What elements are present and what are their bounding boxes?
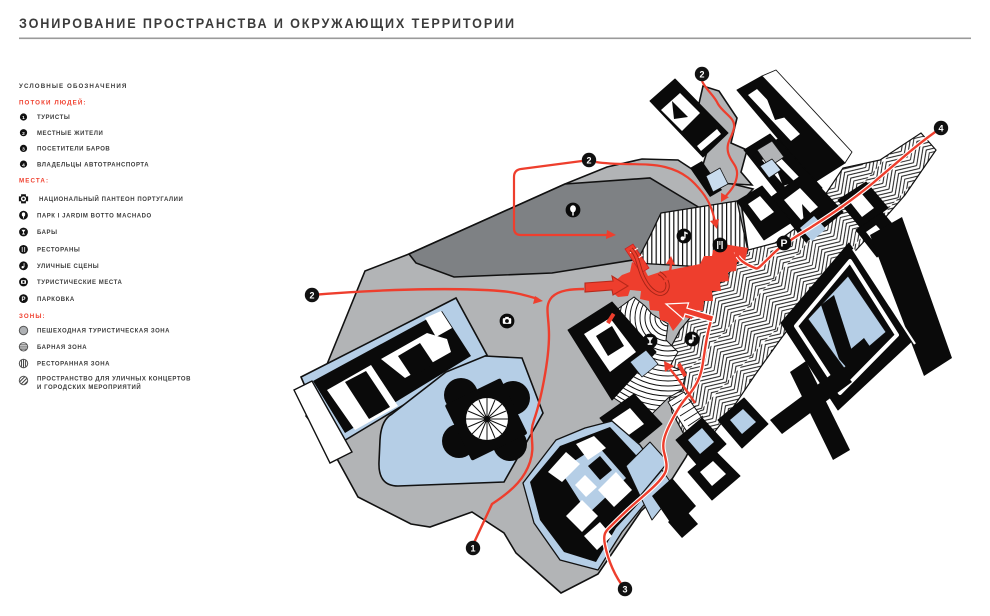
- svg-text:И ГОРОДСКИХ МЕРОПРИЯТИЙ: И ГОРОДСКИХ МЕРОПРИЯТИЙ: [37, 383, 141, 391]
- svg-text:ПОСЕТИТЕЛИ БАРОВ: ПОСЕТИТЕЛИ БАРОВ: [37, 147, 110, 153]
- svg-text:4: 4: [938, 123, 943, 133]
- svg-text:3: 3: [22, 147, 25, 153]
- svg-text:ПАРКОВКА: ПАРКОВКА: [37, 297, 75, 303]
- svg-text:ПАРК I JARDIM BOTTO MACHADO: ПАРК I JARDIM BOTTO MACHADO: [37, 213, 152, 219]
- svg-text:УСЛОВНЫЕ ОБОЗНАЧЕНИЯ: УСЛОВНЫЕ ОБОЗНАЧЕНИЯ: [19, 83, 127, 90]
- svg-text:P: P: [780, 238, 787, 250]
- svg-text:БАРЫ: БАРЫ: [37, 230, 58, 236]
- svg-text:ПРОСТРАНСТВО ДЛЯ УЛИЧНЫХ КОНЦЕ: ПРОСТРАНСТВО ДЛЯ УЛИЧНЫХ КОНЦЕРТОВ: [37, 377, 191, 383]
- svg-text:ПЕШЕХОДНАЯ ТУРИСТИЧЕСКАЯ ЗОНА: ПЕШЕХОДНАЯ ТУРИСТИЧЕСКАЯ ЗОНА: [37, 329, 170, 335]
- svg-text:МЕСТНЫЕ ЖИТЕЛИ: МЕСТНЫЕ ЖИТЕЛИ: [37, 131, 103, 137]
- svg-text:2: 2: [22, 131, 25, 137]
- svg-text:РЕСТОРАННАЯ ЗОНА: РЕСТОРАННАЯ ЗОНА: [37, 362, 110, 368]
- svg-text:НАЦИОНАЛЬНЫЙ ПАНТЕОН ПОРТУГАЛИ: НАЦИОНАЛЬНЫЙ ПАНТЕОН ПОРТУГАЛИИ: [39, 195, 183, 203]
- svg-text:P: P: [21, 297, 25, 303]
- svg-text:ВЛАДЕЛЬЦЫ АВТОТРАНСПОРТА: ВЛАДЕЛЬЦЫ АВТОТРАНСПОРТА: [37, 162, 149, 168]
- svg-text:РЕСТОРАНЫ: РЕСТОРАНЫ: [37, 248, 80, 254]
- svg-text:2: 2: [586, 155, 591, 165]
- svg-text:1: 1: [22, 115, 25, 121]
- svg-text:УЛИЧНЫЕ СЦЕНЫ: УЛИЧНЫЕ СЦЕНЫ: [37, 264, 99, 270]
- svg-text:МЕСТА:: МЕСТА:: [19, 178, 49, 185]
- svg-text:ЗОНЫ:: ЗОНЫ:: [19, 313, 46, 320]
- svg-text:1: 1: [470, 543, 475, 553]
- svg-text:ТУРИСТЫ: ТУРИСТЫ: [37, 115, 70, 121]
- svg-text:ПОТОКИ ЛЮДЕЙ:: ПОТОКИ ЛЮДЕЙ:: [19, 99, 87, 107]
- svg-text:ТУРИСТИЧЕСКИЕ МЕСТА: ТУРИСТИЧЕСКИЕ МЕСТА: [37, 280, 122, 286]
- svg-text:БАРНАЯ ЗОНА: БАРНАЯ ЗОНА: [37, 345, 87, 351]
- svg-text:4: 4: [22, 162, 25, 168]
- svg-text:2: 2: [699, 69, 704, 79]
- svg-text:ЗОНИРОВАНИЕ ПРОСТРАНСТВА И ОКР: ЗОНИРОВАНИЕ ПРОСТРАНСТВА И ОКРУЖАЮЩИХ ТЕ…: [19, 16, 516, 31]
- svg-text:2: 2: [309, 290, 314, 300]
- svg-text:3: 3: [622, 584, 627, 594]
